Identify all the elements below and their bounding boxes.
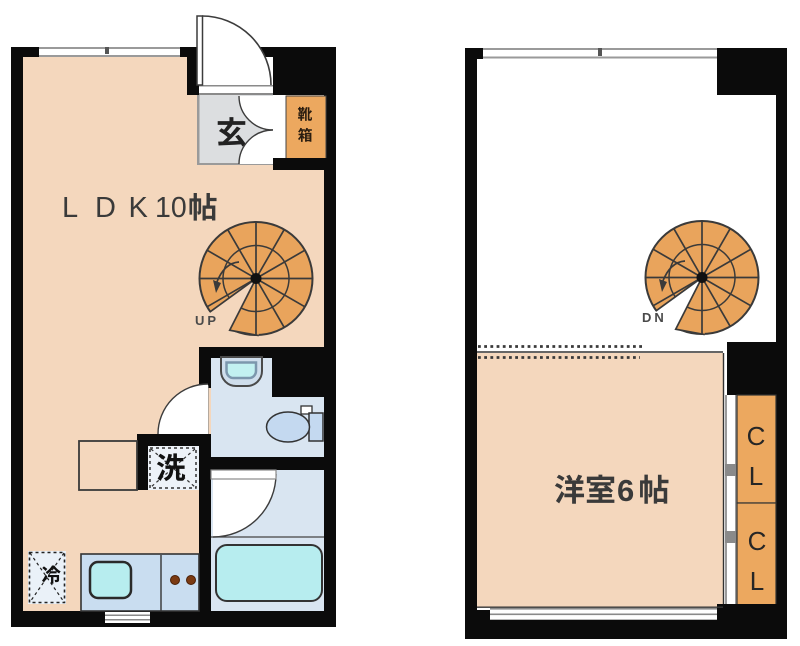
svg-text:L: L — [750, 566, 764, 596]
svg-text:L: L — [749, 461, 763, 491]
svg-text:C: C — [747, 421, 766, 451]
svg-text:DN: DN — [642, 310, 667, 325]
svg-text:D: D — [95, 192, 116, 224]
svg-text:K: K — [129, 192, 149, 224]
svg-text:C: C — [748, 526, 767, 556]
svg-text:UP: UP — [195, 313, 219, 328]
svg-text:6: 6 — [617, 473, 634, 508]
svg-text:10: 10 — [155, 192, 187, 224]
svg-text:L: L — [62, 192, 78, 224]
